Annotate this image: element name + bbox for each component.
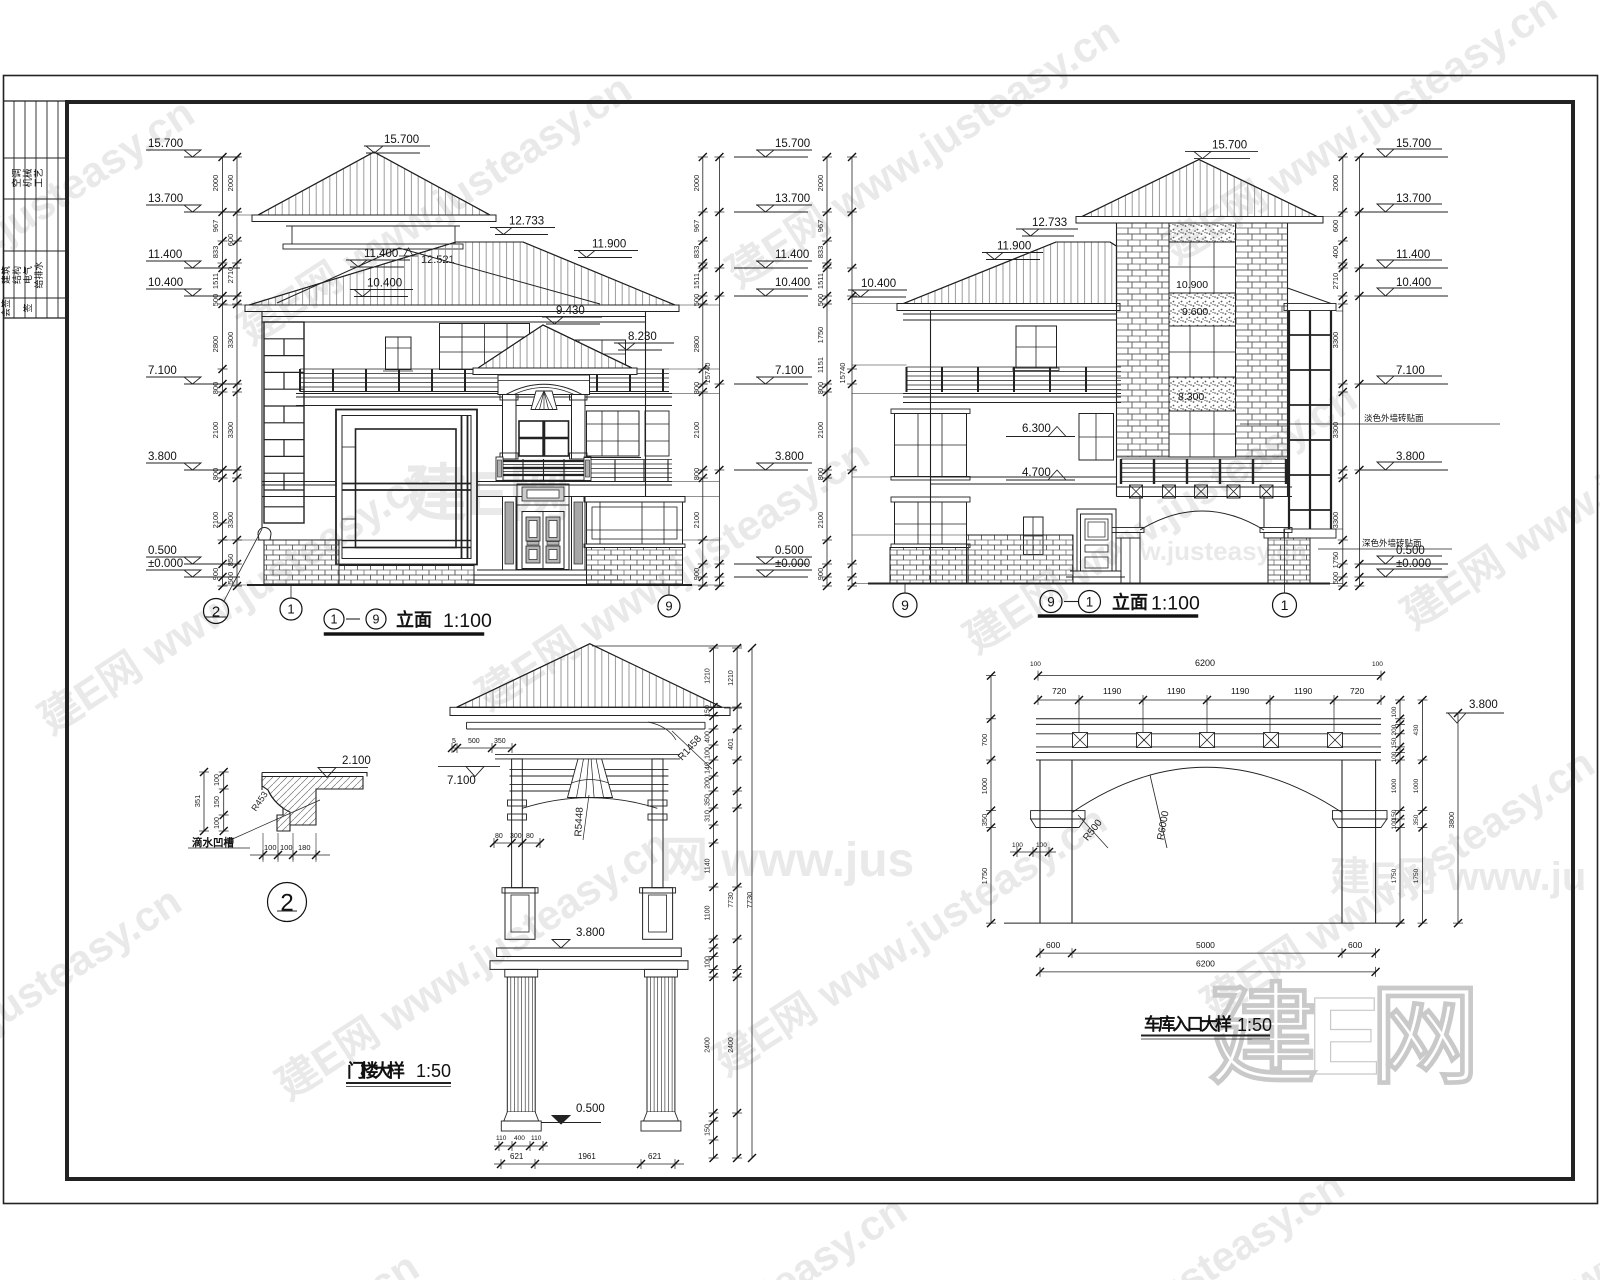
svg-text:1511: 1511 — [692, 273, 701, 289]
svg-text:310: 310 — [705, 810, 712, 822]
svg-text:9: 9 — [901, 597, 909, 613]
svg-text:2100: 2100 — [816, 512, 825, 529]
svg-text:15.700: 15.700 — [775, 138, 810, 150]
svg-text:150: 150 — [214, 796, 221, 808]
svg-text:淡色外墙砖贴面: 淡色外墙砖贴面 — [1364, 413, 1424, 423]
svg-text:9: 9 — [665, 599, 672, 614]
svg-text:15.700: 15.700 — [148, 138, 183, 150]
svg-text:工艺: 工艺 — [34, 168, 45, 187]
svg-text:10.400: 10.400 — [861, 278, 896, 290]
svg-text:滴水凹槽: 滴水凹槽 — [192, 836, 234, 849]
svg-text:2100: 2100 — [816, 422, 825, 439]
svg-text:车库入口大样: 车库入口大样 — [1144, 1014, 1232, 1034]
svg-text:10.900: 10.900 — [1176, 279, 1208, 291]
svg-text:900: 900 — [211, 568, 220, 581]
svg-text:1961: 1961 — [578, 1152, 596, 1161]
svg-text:6200: 6200 — [1196, 959, 1215, 969]
svg-text:3.800: 3.800 — [775, 451, 804, 463]
svg-text:1210: 1210 — [728, 670, 735, 686]
svg-text:600: 600 — [226, 234, 235, 247]
svg-text:9.600: 9.600 — [1182, 306, 1208, 318]
svg-text:900: 900 — [692, 568, 701, 581]
svg-text:1190: 1190 — [1103, 686, 1122, 696]
svg-text:7730: 7730 — [728, 892, 735, 908]
svg-text:1: 1 — [1086, 594, 1094, 609]
svg-text:600: 600 — [1331, 220, 1340, 233]
svg-text:3.800: 3.800 — [576, 927, 605, 939]
svg-text:11.900: 11.900 — [592, 239, 626, 251]
svg-text:350: 350 — [705, 794, 712, 806]
svg-text:1750: 1750 — [1331, 552, 1340, 569]
svg-text:200: 200 — [1391, 724, 1398, 735]
svg-text:2100: 2100 — [692, 512, 701, 529]
svg-text:2: 2 — [212, 603, 220, 620]
svg-text:720: 720 — [1350, 686, 1364, 696]
svg-text:8.300: 8.300 — [1178, 391, 1204, 403]
svg-text:1000: 1000 — [980, 778, 989, 795]
svg-text:门楼大样: 门楼大样 — [347, 1060, 405, 1081]
svg-text:100: 100 — [1030, 661, 1041, 668]
svg-text:空调: 空调 — [11, 168, 23, 187]
svg-text:5: 5 — [452, 738, 456, 745]
svg-text:2400: 2400 — [705, 1037, 712, 1053]
svg-text:2710: 2710 — [226, 267, 235, 284]
svg-text:1190: 1190 — [1231, 686, 1250, 696]
svg-text:9: 9 — [373, 613, 380, 627]
svg-text:850: 850 — [226, 554, 235, 567]
svg-text:2000: 2000 — [816, 175, 825, 192]
svg-text:800: 800 — [211, 468, 220, 481]
svg-text:500: 500 — [692, 294, 701, 307]
svg-text:9: 9 — [1047, 594, 1055, 609]
svg-text:800: 800 — [692, 382, 701, 395]
svg-text:2100: 2100 — [211, 512, 220, 529]
svg-text:会签: 会签 — [0, 299, 11, 317]
svg-text:签: 签 — [22, 303, 33, 312]
svg-text:11.400: 11.400 — [1396, 249, 1430, 261]
svg-text:2710: 2710 — [1331, 273, 1340, 290]
svg-text:500: 500 — [211, 294, 220, 307]
svg-text:600: 600 — [1348, 940, 1362, 950]
svg-text:967: 967 — [692, 220, 701, 233]
svg-text:1511: 1511 — [816, 273, 825, 289]
svg-text:10.400: 10.400 — [148, 277, 183, 289]
svg-text:9.430: 9.430 — [556, 305, 585, 317]
svg-text:400: 400 — [1331, 246, 1340, 259]
svg-text:13.700: 13.700 — [148, 193, 183, 205]
svg-text:2100: 2100 — [692, 422, 701, 439]
svg-text:100: 100 — [280, 843, 293, 852]
svg-text:80: 80 — [526, 833, 534, 840]
svg-text:11.900: 11.900 — [997, 241, 1031, 253]
svg-text:100: 100 — [1036, 842, 1047, 849]
svg-text:110: 110 — [496, 1135, 507, 1142]
svg-text:电气: 电气 — [22, 266, 33, 284]
svg-text:351: 351 — [193, 795, 202, 808]
svg-text:1:50: 1:50 — [1237, 1015, 1272, 1035]
svg-text:1511: 1511 — [211, 273, 220, 289]
svg-text:720: 720 — [1052, 686, 1066, 696]
svg-text:1000: 1000 — [1391, 778, 1398, 793]
svg-text:900: 900 — [816, 568, 825, 581]
svg-text:1100: 1100 — [705, 905, 712, 920]
svg-text:立面: 立面 — [1112, 592, 1148, 613]
svg-text:1210: 1210 — [705, 668, 712, 684]
svg-text:150: 150 — [705, 705, 712, 717]
svg-text:100: 100 — [264, 843, 277, 852]
svg-text:0.500: 0.500 — [576, 1103, 605, 1115]
svg-text:15740: 15740 — [703, 363, 712, 384]
svg-text:400: 400 — [705, 731, 712, 743]
svg-text:100: 100 — [1372, 661, 1383, 668]
svg-text:2: 2 — [280, 890, 293, 917]
svg-text:800: 800 — [816, 468, 825, 481]
svg-text:11.400: 11.400 — [148, 249, 182, 261]
svg-text:3300: 3300 — [226, 512, 235, 529]
svg-text:7.100: 7.100 — [775, 365, 804, 377]
svg-text:1750: 1750 — [980, 868, 989, 885]
svg-text:100: 100 — [705, 956, 712, 968]
svg-text:2800: 2800 — [211, 336, 220, 353]
svg-text:建筑: 建筑 — [0, 266, 11, 284]
svg-text:给排水: 给排水 — [33, 261, 44, 288]
svg-text:300: 300 — [510, 833, 522, 840]
svg-text:2000: 2000 — [226, 175, 235, 192]
svg-text:621: 621 — [648, 1152, 662, 1161]
svg-text:15.700: 15.700 — [1212, 140, 1247, 152]
svg-text:967: 967 — [816, 220, 825, 233]
svg-text:700: 700 — [980, 734, 989, 747]
svg-text:10.400: 10.400 — [367, 278, 402, 290]
svg-text:±0.000: ±0.000 — [775, 558, 810, 570]
svg-text:100: 100 — [705, 747, 712, 759]
svg-text:100: 100 — [1012, 842, 1023, 849]
svg-text:401: 401 — [728, 738, 735, 750]
svg-text:350: 350 — [1413, 814, 1420, 825]
svg-text:180: 180 — [298, 843, 311, 852]
svg-text:3.800: 3.800 — [1469, 699, 1498, 711]
svg-text:500: 500 — [1331, 572, 1340, 585]
svg-text:110: 110 — [531, 1135, 542, 1142]
svg-text:1000: 1000 — [1413, 778, 1420, 793]
svg-text:7.100: 7.100 — [1396, 365, 1425, 377]
svg-text:833: 833 — [692, 246, 701, 259]
svg-text:833: 833 — [816, 246, 825, 259]
svg-text:1: 1 — [287, 602, 294, 617]
svg-text:1140: 1140 — [705, 858, 712, 873]
svg-text:621: 621 — [510, 1152, 524, 1161]
svg-text:500: 500 — [816, 294, 825, 307]
svg-text:3300: 3300 — [1331, 512, 1340, 529]
svg-text:2400: 2400 — [728, 1037, 735, 1053]
svg-text:1:100: 1:100 — [1151, 593, 1200, 615]
svg-text:7.100: 7.100 — [447, 775, 476, 787]
svg-text:1190: 1190 — [1294, 686, 1313, 696]
svg-text:6200: 6200 — [1195, 658, 1215, 668]
svg-text:2100: 2100 — [211, 422, 220, 439]
svg-text:深色外墙砖贴面: 深色外墙砖贴面 — [1362, 538, 1422, 548]
svg-text:2000: 2000 — [692, 175, 701, 192]
svg-text:1:50: 1:50 — [416, 1061, 451, 1081]
svg-text:1:100: 1:100 — [443, 610, 492, 632]
svg-text:10.400: 10.400 — [1396, 277, 1431, 289]
svg-text:机械: 机械 — [22, 168, 34, 188]
svg-text:12.733: 12.733 — [1032, 217, 1067, 229]
svg-text:3.800: 3.800 — [148, 451, 177, 463]
svg-text:11.400: 11.400 — [775, 249, 809, 261]
svg-text:10.400: 10.400 — [775, 277, 810, 289]
svg-text:0.500: 0.500 — [775, 545, 804, 557]
svg-text:100: 100 — [214, 817, 221, 829]
svg-text:3.800: 3.800 — [1396, 451, 1425, 463]
svg-text:140: 140 — [705, 762, 712, 774]
svg-text:350: 350 — [494, 738, 506, 745]
svg-text:1: 1 — [1281, 597, 1289, 613]
svg-text:150: 150 — [1391, 737, 1398, 748]
svg-text:3300: 3300 — [226, 332, 235, 349]
svg-text:100: 100 — [1391, 751, 1398, 762]
svg-text:6.300: 6.300 — [1022, 423, 1051, 435]
svg-text:800: 800 — [816, 382, 825, 395]
svg-text:500: 500 — [468, 738, 480, 745]
svg-text:100: 100 — [214, 774, 221, 786]
svg-text:8.230: 8.230 — [628, 331, 657, 343]
svg-text:1190: 1190 — [1167, 686, 1186, 696]
svg-text:13.700: 13.700 — [1396, 193, 1431, 205]
svg-text:结构: 结构 — [11, 266, 22, 284]
svg-text:1750: 1750 — [1413, 868, 1420, 883]
svg-text:3300: 3300 — [226, 422, 235, 439]
svg-text:0.500: 0.500 — [148, 545, 177, 557]
svg-text:7.100: 7.100 — [148, 365, 177, 377]
svg-text:1750: 1750 — [1391, 868, 1398, 883]
svg-text:13.700: 13.700 — [775, 193, 810, 205]
svg-text:2000: 2000 — [211, 175, 220, 192]
svg-text:15.700: 15.700 — [384, 134, 419, 146]
svg-text:2000: 2000 — [1331, 175, 1340, 192]
svg-text:100: 100 — [1391, 818, 1398, 829]
svg-text:800: 800 — [211, 382, 220, 395]
svg-text:3800: 3800 — [1447, 812, 1456, 829]
svg-text:1750: 1750 — [816, 327, 825, 344]
svg-text:400: 400 — [514, 1135, 525, 1142]
svg-text:200: 200 — [705, 777, 712, 789]
svg-text:网 www.jus: 网 www.jus — [660, 834, 914, 887]
svg-text:12.733: 12.733 — [509, 216, 544, 228]
svg-text:967: 967 — [211, 220, 220, 233]
svg-text:5000: 5000 — [1196, 940, 1215, 950]
svg-text:±0.000: ±0.000 — [148, 558, 183, 570]
svg-text:±0.000: ±0.000 — [1396, 558, 1431, 570]
svg-text:1151: 1151 — [816, 357, 825, 373]
svg-text:15740: 15740 — [838, 363, 847, 384]
svg-text:2800: 2800 — [692, 336, 701, 353]
svg-text:600: 600 — [1046, 940, 1060, 950]
svg-text:1: 1 — [331, 613, 338, 627]
svg-text:3300: 3300 — [1331, 332, 1340, 349]
svg-text:833: 833 — [211, 246, 220, 259]
svg-text:11.400: 11.400 — [364, 248, 398, 260]
svg-text:150: 150 — [705, 1124, 712, 1136]
svg-text:800: 800 — [692, 468, 701, 481]
svg-text:100: 100 — [1391, 706, 1398, 717]
svg-text:350: 350 — [980, 814, 989, 827]
svg-text:430: 430 — [1413, 724, 1420, 735]
svg-text:15.700: 15.700 — [1396, 138, 1431, 150]
svg-text:80: 80 — [495, 833, 503, 840]
svg-text:7730: 7730 — [745, 892, 754, 909]
svg-text:2.100: 2.100 — [342, 755, 371, 767]
svg-text:立面: 立面 — [396, 609, 432, 630]
